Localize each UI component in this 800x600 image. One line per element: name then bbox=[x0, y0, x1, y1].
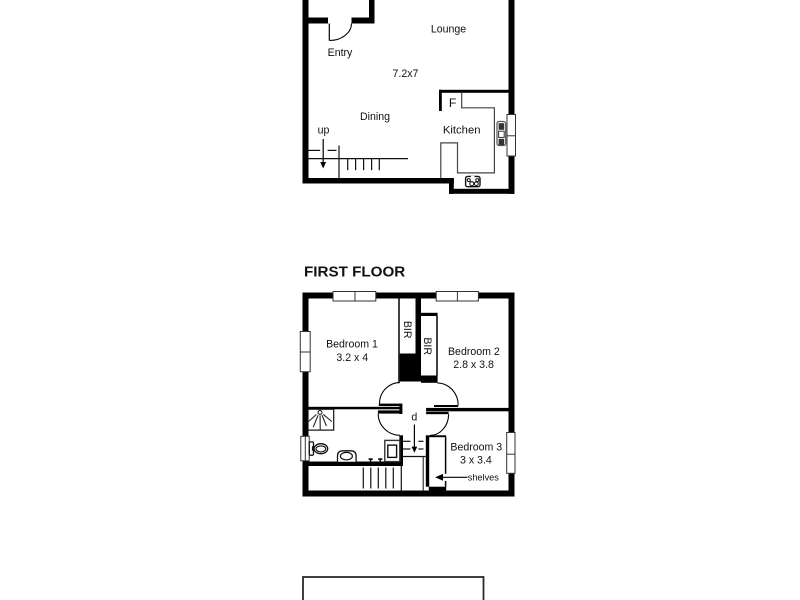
svg-text:Entry: Entry bbox=[328, 47, 353, 59]
svg-text:Bedroom 3: Bedroom 3 bbox=[450, 441, 502, 453]
svg-text:Bedroom 2: Bedroom 2 bbox=[448, 346, 500, 358]
svg-text:Bedroom 1: Bedroom 1 bbox=[326, 339, 378, 351]
svg-text:3 x 3.4: 3 x 3.4 bbox=[460, 455, 492, 467]
svg-text:BIR: BIR bbox=[401, 321, 413, 339]
svg-text:up: up bbox=[318, 124, 330, 136]
svg-text:Dining: Dining bbox=[360, 111, 390, 123]
svg-text:7.2x7: 7.2x7 bbox=[393, 68, 419, 80]
svg-text:F: F bbox=[449, 96, 457, 110]
svg-text:BIR: BIR bbox=[421, 337, 433, 355]
svg-text:shelves: shelves bbox=[468, 472, 500, 482]
svg-text:2.8 x 3.8: 2.8 x 3.8 bbox=[453, 359, 494, 371]
svg-text:d: d bbox=[411, 411, 417, 423]
svg-text:3.2 x 4: 3.2 x 4 bbox=[336, 352, 368, 364]
svg-text:Kitchen: Kitchen bbox=[443, 125, 481, 137]
svg-text:FIRST FLOOR: FIRST FLOOR bbox=[304, 264, 405, 281]
svg-text:Lounge: Lounge bbox=[431, 24, 466, 36]
